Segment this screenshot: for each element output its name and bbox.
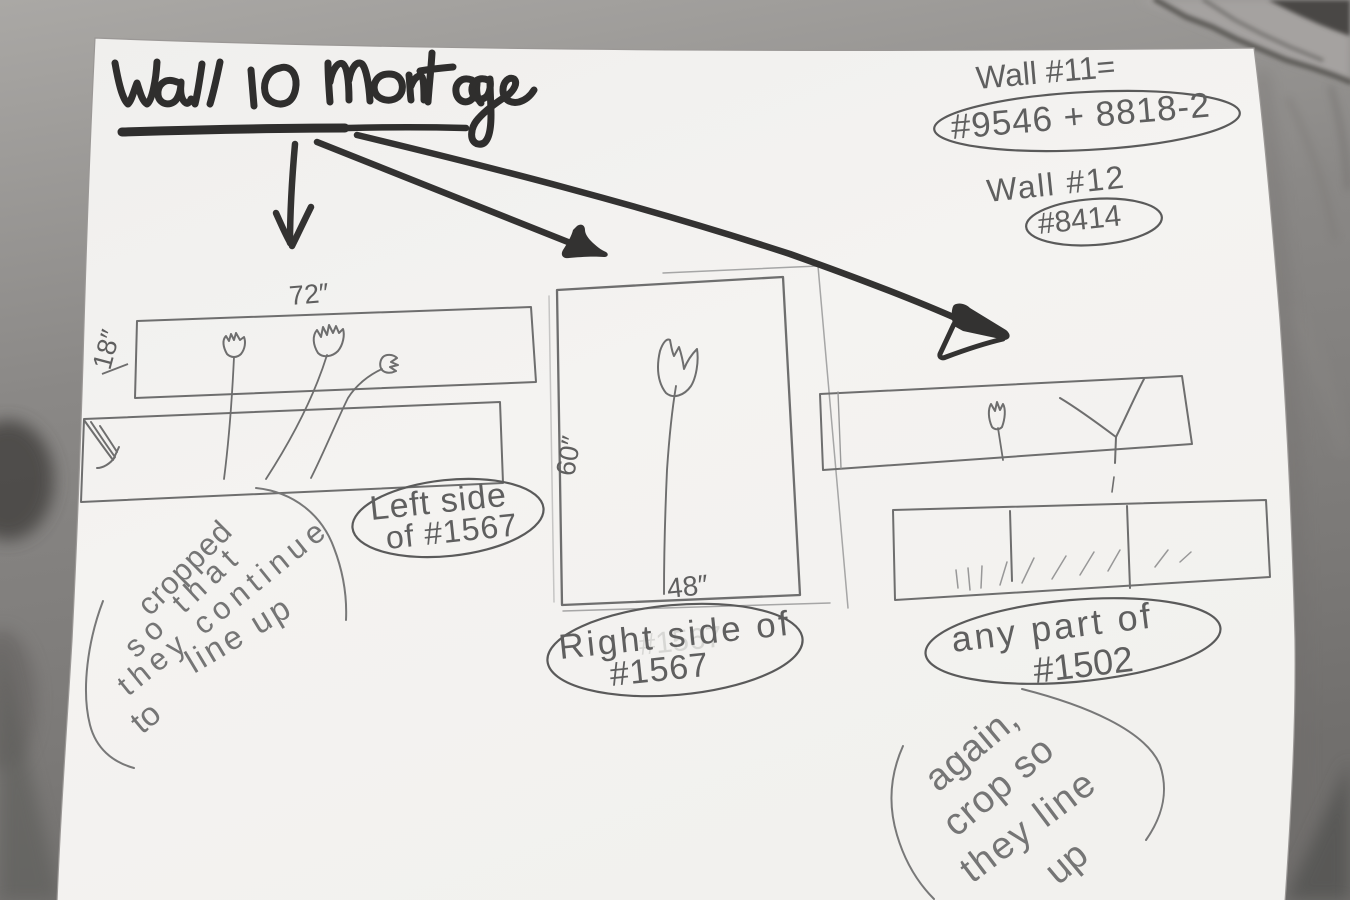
svg-text:48″: 48″ xyxy=(665,569,709,604)
svg-text:72″: 72″ xyxy=(288,278,330,311)
